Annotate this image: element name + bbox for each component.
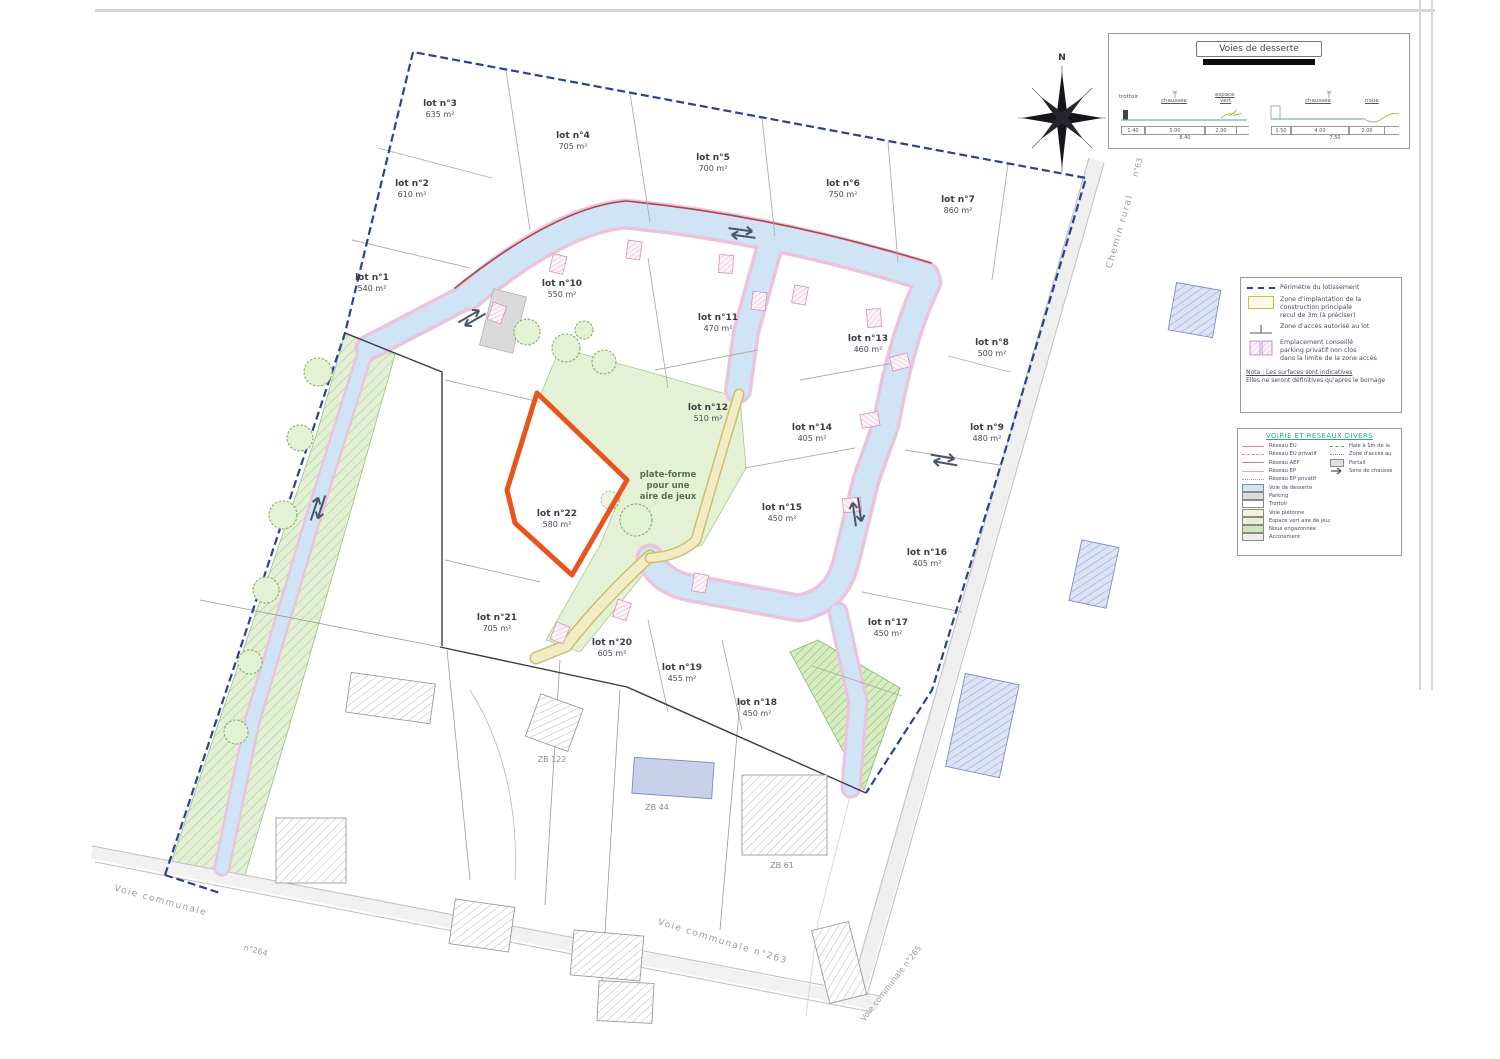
legend-item-implantation: Zone d'implantation de la construction p… [1246, 296, 1396, 320]
cross-section-right-total: 7.50 [1271, 134, 1399, 141]
lot-11-name: lot n°11 [698, 313, 738, 323]
legend-item-perimeter-label: Périmètre du lotissement [1280, 284, 1359, 292]
cross-section-left: trottoir chaussée espace vert 1.40 5.00 … [1117, 90, 1253, 142]
lot-5-name: lot n°5 [696, 153, 730, 163]
legend-item-perimeter: Périmètre du lotissement [1246, 284, 1396, 292]
lot-21-name: lot n°21 [477, 613, 517, 623]
dim-accot: 1.50 [1271, 127, 1291, 134]
legend-vrd-left-column: Réseau EU Réseau EU privatif Réseau AEP … [1242, 442, 1330, 542]
lot-12-area: 510 m² [694, 414, 723, 423]
lot-15-name: lot n°15 [762, 503, 802, 513]
lot-22-name: lot n°22 [537, 509, 577, 519]
lot-12-name: lot n°12 [688, 403, 728, 413]
playground-label: plate-forme pour une aire de jeux [640, 470, 697, 502]
lot-19-name: lot n°19 [662, 663, 702, 673]
lot-1-name: lot n°1 [355, 273, 389, 283]
lot-10-area: 550 m² [548, 290, 577, 299]
legend-item-access-label: Zone d'accès autorisé au lot [1280, 323, 1369, 331]
lot-1-area: 540 m² [358, 284, 387, 293]
lot-7-name: lot n°7 [941, 195, 975, 205]
direction-arrow-icon [1330, 467, 1346, 475]
cross-section-right-drawing [1267, 90, 1403, 126]
cross-section-panel: Voies de desserte trottoir chaussée espa… [1108, 33, 1410, 149]
lot-8-area: 500 m² [978, 349, 1007, 358]
lot-10-name: lot n°10 [542, 279, 582, 289]
cross-section-right: chaussée noue 1.50 4.00 2.00 7.50 [1267, 90, 1403, 142]
cross-section-left-drawing [1117, 90, 1253, 126]
lot-3-name: lot n°3 [423, 99, 457, 109]
lot-7-area: 860 m² [944, 206, 973, 215]
legend-note: Nota : Les surfaces sont indicatives Ell… [1246, 369, 1396, 384]
lot-14-area: 405 m² [798, 434, 827, 443]
lot-2-name: lot n°2 [395, 179, 429, 189]
legend-item-parking: Emplacement conseillé parking privatif n… [1246, 339, 1396, 363]
lot-6-name: lot n°6 [826, 179, 860, 189]
parcel-zb122: ZB 122 [538, 755, 567, 764]
cross-section-right-dims: 1.50 4.00 2.00 [1271, 126, 1399, 134]
lot-20-area: 605 m² [598, 649, 627, 658]
lot-4-name: lot n°4 [556, 131, 590, 141]
lot-17-name: lot n°17 [868, 618, 908, 628]
label-chemin-no: n°63 [1131, 157, 1145, 178]
lot-9-name: lot n°9 [970, 423, 1004, 433]
svg-text:plate-forme: plate-forme [640, 470, 697, 480]
lot-15-area: 450 m² [768, 514, 797, 523]
legend-vrd-title: VOIRIE ET RESEAUX DIVERS [1242, 432, 1397, 440]
lot-20-name: lot n°20 [592, 638, 632, 648]
lot-21-area: 705 m² [483, 624, 512, 633]
label-chemin-rural: Chemin rural [1105, 193, 1136, 269]
site-plan-page: N lot n°1 540 m² lot n°2 610 m² lot n°3 … [0, 0, 1500, 1059]
lot-13-name: lot n°13 [848, 334, 888, 344]
access-zone-symbol [1246, 323, 1276, 335]
svg-text:pour une: pour une [647, 481, 690, 491]
legend-vrd-right-column: Haie à 1m de la voie Zone d'accès au lot… [1330, 442, 1392, 542]
dim-chaussee: 5.00 [1145, 127, 1205, 134]
legend-item-parking-label: Emplacement conseillé parking privatif n… [1280, 339, 1377, 363]
lot-11-area: 470 m² [704, 324, 733, 333]
lot-18-area: 450 m² [743, 709, 772, 718]
legend-item-access: Zone d'accès autorisé au lot [1246, 323, 1396, 335]
lot-18-name: lot n°18 [737, 698, 777, 708]
implantation-zone-symbol [1246, 296, 1276, 309]
parking-symbol [1246, 339, 1276, 357]
legend-item-implantation-label: Zone d'implantation de la construction p… [1280, 296, 1361, 320]
lot-9-area: 480 m² [973, 434, 1002, 443]
svg-text:aire de jeux: aire de jeux [640, 492, 697, 502]
perimeter-dashed-symbol [1246, 284, 1276, 289]
legend-vrd: VOIRIE ET RESEAUX DIVERS Réseau EU Résea… [1237, 428, 1402, 556]
cross-section-title: Voies de desserte [1196, 41, 1322, 57]
dim-espace-vert: 2.00 [1205, 127, 1237, 134]
lot-13-area: 460 m² [854, 345, 883, 354]
compass-rose-icon: N [1018, 53, 1106, 172]
lot-6-area: 750 m² [829, 190, 858, 199]
cross-section-left-dims: 1.40 5.00 2.00 [1121, 126, 1249, 134]
lot-5-area: 700 m² [699, 164, 728, 173]
lot-16-area: 405 m² [913, 559, 942, 568]
lot-16-name: lot n°16 [907, 548, 947, 558]
lot-19-area: 455 m² [668, 674, 697, 683]
lot-8-name: lot n°8 [975, 338, 1009, 348]
title-underline-bar [1203, 59, 1315, 65]
lot-4-area: 705 m² [559, 142, 588, 151]
legend-zones: Périmètre du lotissement Zone d'implanta… [1240, 277, 1402, 413]
north-label: N [1058, 53, 1066, 63]
lot-2-area: 610 m² [398, 190, 427, 199]
lot-17-area: 450 m² [874, 629, 903, 638]
dim-noue: 2.00 [1349, 127, 1385, 134]
parcel-zb44: ZB 44 [645, 803, 669, 812]
dim-chaussee-r: 4.00 [1291, 127, 1349, 134]
parcel-zb61: ZB 61 [770, 861, 794, 870]
dim-trottoir: 1.40 [1121, 127, 1145, 134]
label-voie-communale-no: n°264 [243, 943, 269, 958]
cross-section-left-total: 8.40 [1121, 134, 1249, 141]
lot-14-name: lot n°14 [792, 423, 832, 433]
lot-22-area: 580 m² [543, 520, 572, 529]
label-voie-communale: Voie communale [113, 884, 208, 918]
lot-3-area: 635 m² [426, 110, 455, 119]
